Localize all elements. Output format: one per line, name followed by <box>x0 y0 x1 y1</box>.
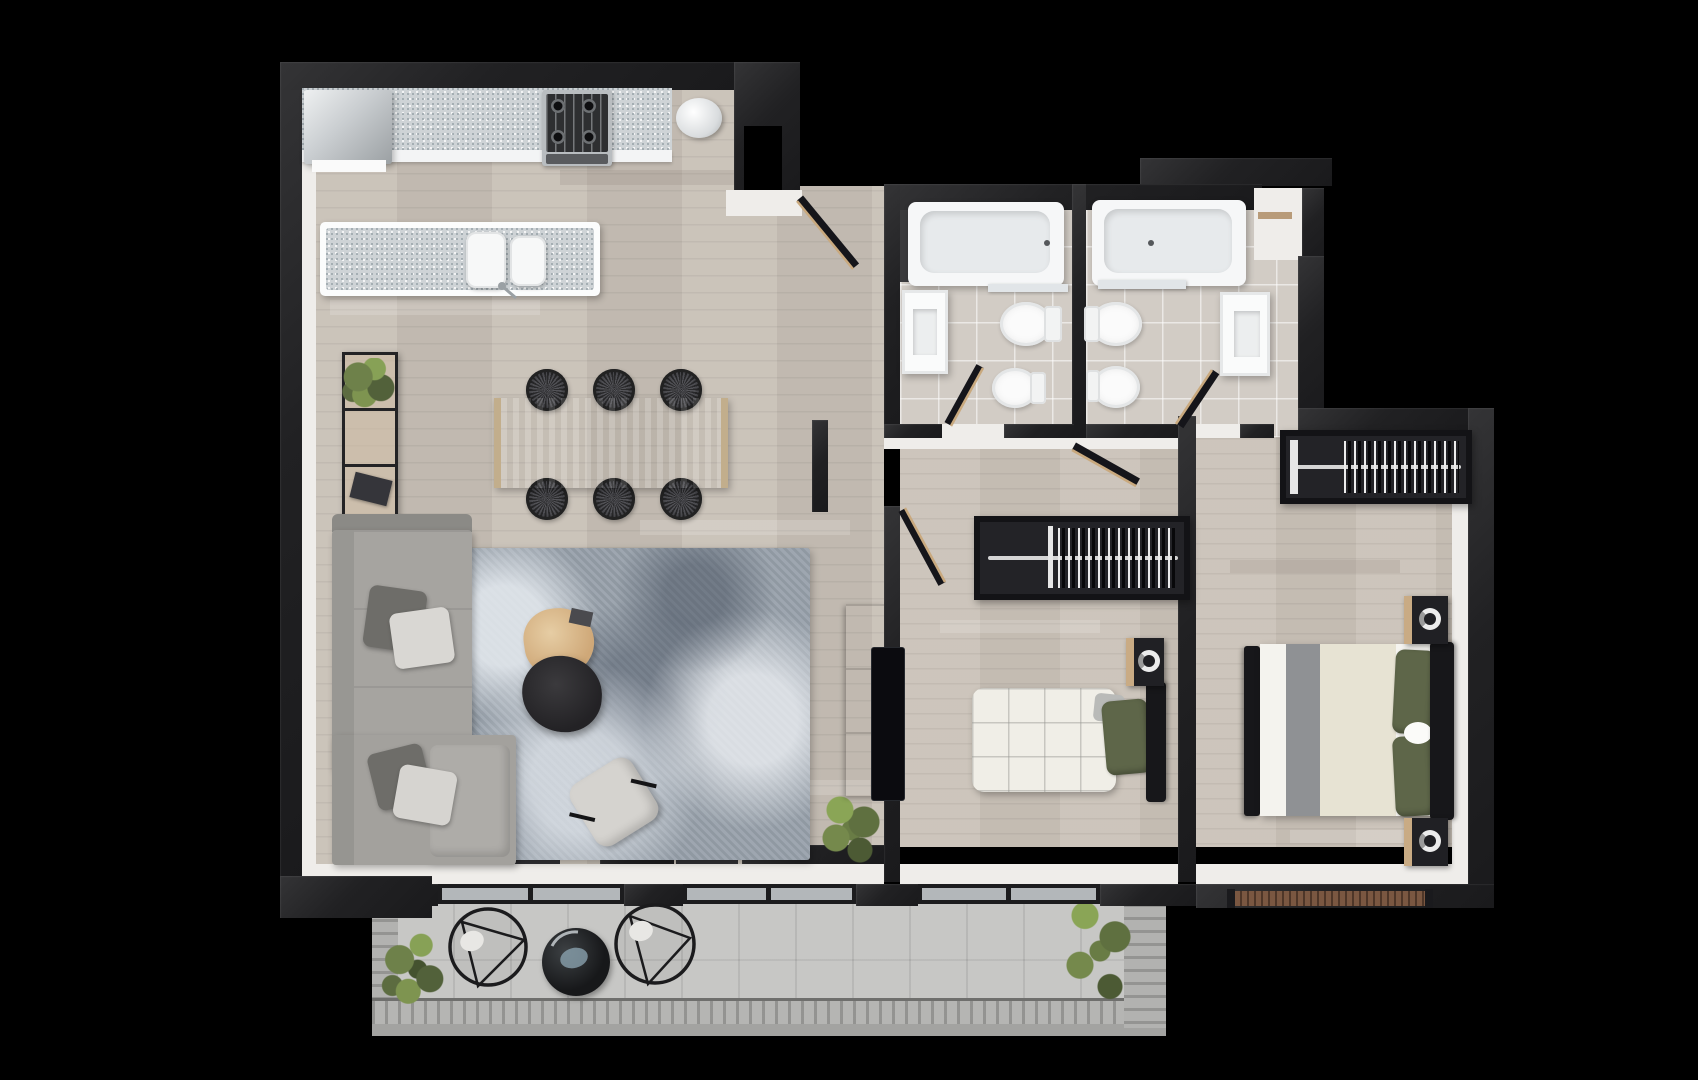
wardrobe <box>974 516 1190 600</box>
bed-footboard <box>1244 646 1260 816</box>
wardrobe-hangers <box>1344 441 1459 493</box>
burner <box>551 99 565 113</box>
island-top <box>326 228 594 290</box>
bathtub-shelf <box>988 284 1068 292</box>
throw-pillow-light <box>388 606 455 670</box>
nightstand <box>1404 596 1448 644</box>
corner-block-sw <box>280 876 432 918</box>
bed-headboard <box>1430 642 1454 820</box>
gas-stove <box>542 90 612 166</box>
wall-bottom-seg <box>624 884 683 906</box>
bathtub <box>908 202 1064 286</box>
wall-step-right <box>1298 256 1324 420</box>
living-plant <box>812 790 892 870</box>
bathtub-shelf <box>1098 280 1186 289</box>
vanity-basin <box>1234 311 1260 357</box>
nightstand <box>1404 818 1448 866</box>
floor-plan-canvas <box>0 0 1698 1080</box>
toilet-tank <box>1044 306 1062 342</box>
wardrobe-shelf-edge <box>1290 440 1298 494</box>
shelf-line <box>345 464 395 467</box>
burner <box>582 130 596 144</box>
nightstand-lamp <box>1138 650 1160 672</box>
wardrobe-hangers <box>1058 528 1176 589</box>
wall-top-outer <box>280 62 742 90</box>
throw-pillow-light <box>392 763 458 826</box>
wall-bath-bottom-d <box>1240 424 1274 438</box>
refrigerator-front <box>312 160 386 172</box>
wall-tv <box>872 648 904 800</box>
wall-bath-topband <box>1140 158 1332 186</box>
glass-window-mullion <box>1006 886 1011 902</box>
bathtub-basin <box>920 211 1050 273</box>
vanity-sink <box>902 290 948 374</box>
wall-bath-bottom-c <box>1086 424 1178 438</box>
exterior-gap <box>800 62 884 186</box>
stove-control-panel <box>546 154 608 164</box>
wall-niche-right <box>1302 188 1324 260</box>
wardrobe <box>1280 430 1472 504</box>
refrigerator <box>304 90 392 164</box>
master-window-frame <box>1425 889 1433 908</box>
nightstand-wood-edge <box>1126 638 1134 686</box>
range-hood <box>676 98 722 138</box>
nightstand <box>1126 638 1164 686</box>
master-window-blinds <box>1235 891 1425 906</box>
plank <box>640 520 850 535</box>
bath2-niche-ledge <box>1258 212 1292 219</box>
master-window-frame <box>1227 889 1235 908</box>
balcony-railing-edge <box>372 1024 1166 1036</box>
nightstand-lamp <box>1419 830 1441 852</box>
wall-bottom-seg <box>1100 884 1196 906</box>
nightstand-lamp <box>1419 608 1441 630</box>
plank <box>330 300 540 315</box>
wall-bath-bottom-b <box>1004 424 1074 438</box>
bidet-tank <box>1030 372 1046 404</box>
wall-hall-stub <box>812 420 828 512</box>
bidet-tank <box>1086 370 1100 402</box>
bed-pillow-white <box>1404 722 1432 744</box>
sill-master <box>1196 864 1468 884</box>
sill-bedroom2 <box>900 864 1178 884</box>
bathtub-faucet <box>1148 240 1154 246</box>
toilet-tank <box>1084 306 1100 342</box>
plank <box>1230 560 1400 573</box>
bed-headboard <box>1146 682 1166 802</box>
vanity-basin <box>913 309 937 355</box>
wall-bath-left <box>884 184 900 438</box>
entry-threshold <box>726 190 802 216</box>
dining-table <box>494 398 728 488</box>
plank <box>940 620 1100 633</box>
bathtub-faucet <box>1044 240 1050 246</box>
wall-left-outer <box>280 62 304 908</box>
burner <box>551 130 565 144</box>
nightstand-wood-edge <box>1404 818 1412 866</box>
bathtub-basin <box>1104 209 1232 273</box>
wall-bedroom-divider <box>1178 416 1196 882</box>
nightstand-wood-edge <box>1404 596 1412 644</box>
shelf-plant <box>342 358 396 412</box>
bed-sheet-fold <box>1260 644 1286 816</box>
bed-runner-gray <box>1286 644 1320 816</box>
wardrobe-divider <box>1048 526 1053 588</box>
bath-doorway-threshold <box>942 424 1004 438</box>
bathtub <box>1092 200 1246 286</box>
wall-bottom-seg <box>856 884 918 906</box>
burner <box>582 99 596 113</box>
entry-door-void <box>744 126 782 192</box>
hall-wall-face <box>884 438 1178 449</box>
wall-master-top <box>1298 408 1478 432</box>
wall-inner-left <box>302 158 316 864</box>
glass-door-mullion <box>766 886 771 902</box>
vanity-sink <box>1220 292 1270 376</box>
balcony-floor <box>396 902 1126 1004</box>
wall-bath-bottom-a <box>884 424 942 438</box>
bath2-niche <box>1254 188 1306 260</box>
sink-basin <box>510 236 546 286</box>
glass-door-mullion <box>528 886 533 902</box>
sink-basin <box>466 232 506 288</box>
balcony-plant-left <box>378 926 450 1022</box>
